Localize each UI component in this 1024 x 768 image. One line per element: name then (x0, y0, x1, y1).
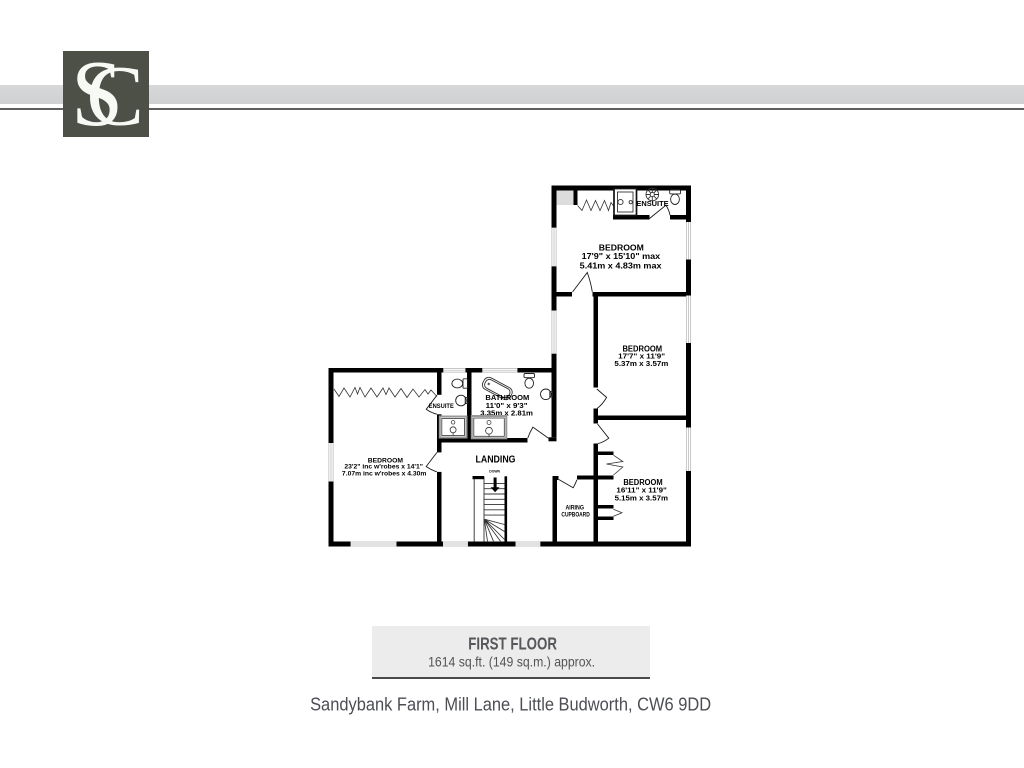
svg-text:5.41m x 4.83m max: 5.41m x 4.83m max (580, 262, 663, 271)
svg-text:Sandybank Farm, Mill Lane, Lit: Sandybank Farm, Mill Lane, Little Budwor… (310, 695, 711, 715)
svg-text:11'0" x 9'3": 11'0" x 9'3" (486, 403, 528, 410)
svg-text:DOWN: DOWN (489, 469, 500, 473)
svg-text:5.15m x 3.57m: 5.15m x 3.57m (615, 493, 669, 502)
svg-text:LANDING: LANDING (476, 455, 516, 466)
svg-text:FIRST FLOOR: FIRST FLOOR (468, 634, 557, 654)
svg-text:5.37m x 3.57m: 5.37m x 3.57m (614, 359, 669, 368)
svg-text:17'9" x 15'10" max: 17'9" x 15'10" max (582, 252, 661, 261)
svg-text:ENSUITE: ENSUITE (429, 403, 454, 410)
svg-text:1614 sq.ft. (149 sq.m.) approx: 1614 sq.ft. (149 sq.m.) approx. (428, 655, 595, 670)
svg-text:ENSUITE: ENSUITE (636, 201, 669, 208)
svg-text:7.07m inc w'robes x 4.30m: 7.07m inc w'robes x 4.30m (342, 470, 427, 477)
svg-text:BATHROOM: BATHROOM (485, 393, 529, 402)
svg-text:CUPBOARD: CUPBOARD (561, 511, 590, 518)
